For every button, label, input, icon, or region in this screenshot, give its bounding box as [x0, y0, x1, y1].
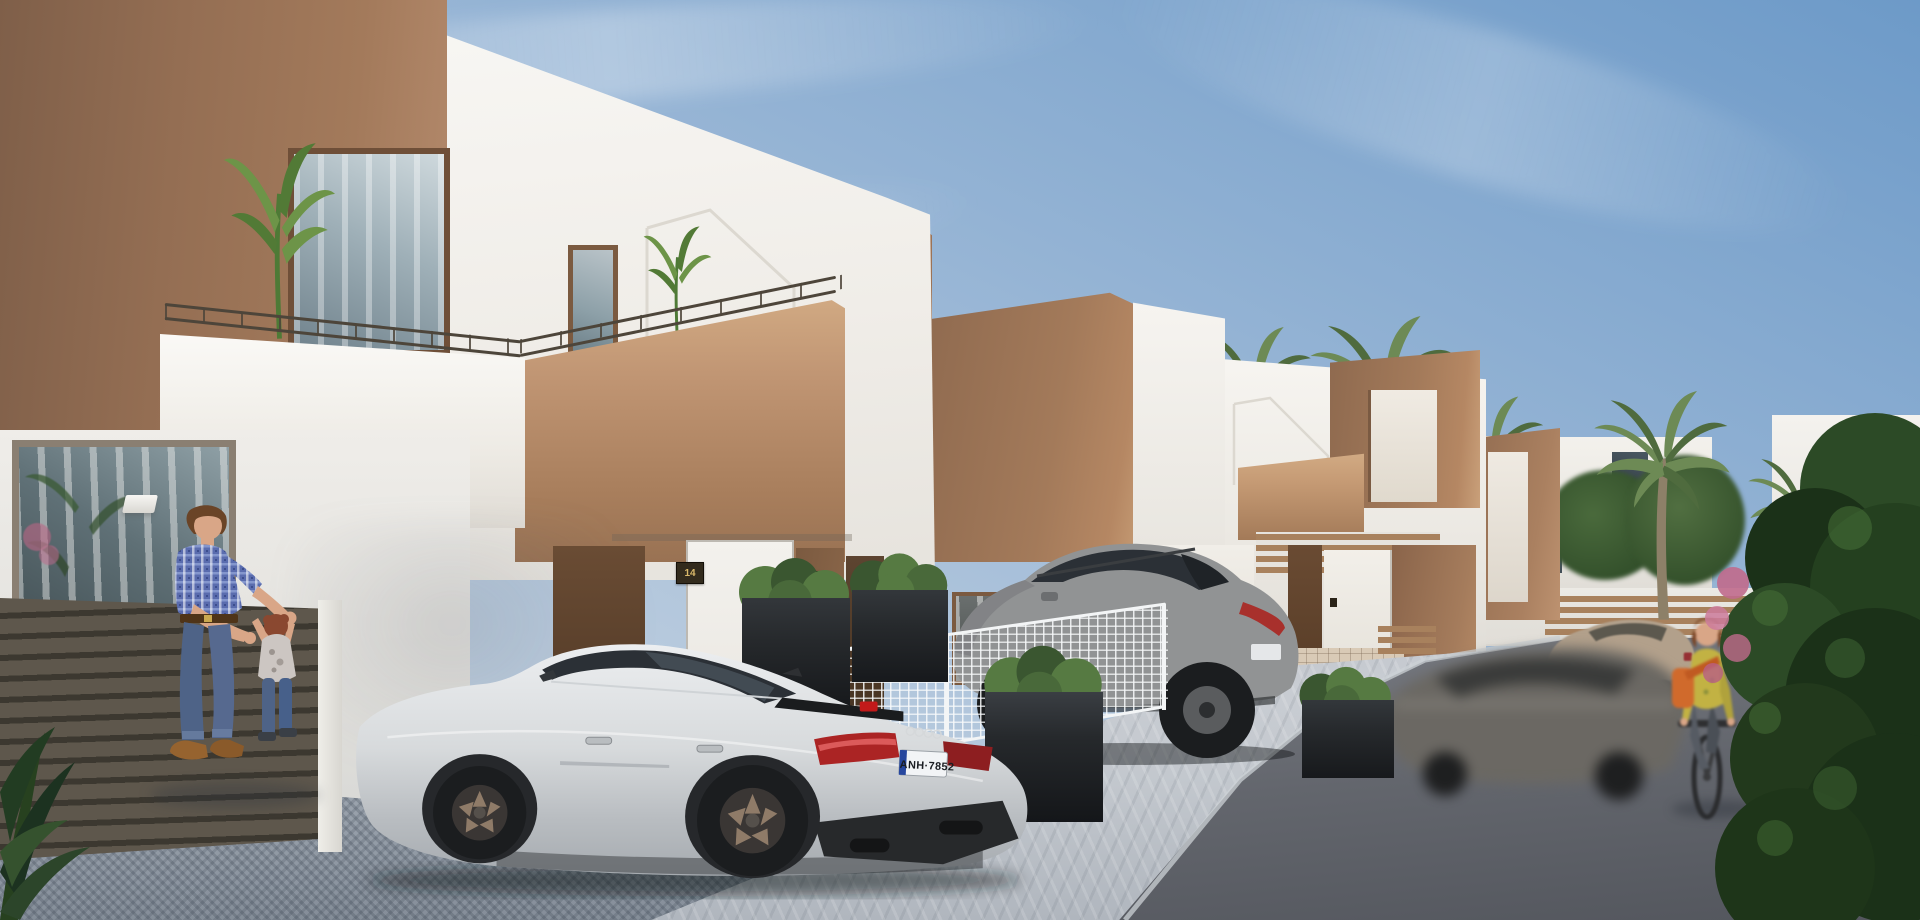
cloud-wisp	[1094, 0, 1866, 282]
audi-sportback: ANH·7852	[345, 642, 1045, 900]
mesh-fence-post	[1162, 604, 1166, 710]
moving-car-blurred	[1375, 608, 1695, 798]
townhouse-4-door-recess	[1488, 452, 1528, 602]
entry-top-shadow	[612, 534, 852, 541]
townhouse-3-balcony-recess	[1368, 390, 1437, 502]
rs-badge	[860, 702, 878, 712]
house-number: 14	[684, 568, 695, 579]
large-hedge	[1695, 408, 1920, 920]
dark-leafy-plant	[0, 672, 110, 920]
front-wheel	[433, 766, 526, 859]
house-number-plaque: 14	[676, 562, 704, 584]
townhouse-2-white-volume	[1133, 300, 1225, 564]
father-and-toddler	[138, 500, 338, 805]
black-planter-box	[1302, 700, 1394, 778]
townhouse-2-brown-volume	[925, 290, 1135, 562]
rear-wheel	[697, 765, 808, 876]
street-render-scene: 14 15	[0, 0, 1920, 920]
townhouse-3-door-plaque	[1330, 598, 1337, 607]
